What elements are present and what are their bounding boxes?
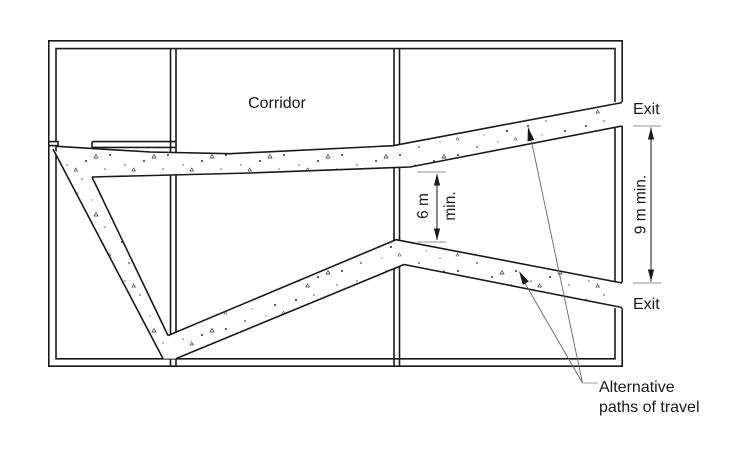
door-wall-stub — [49, 142, 58, 146]
corridor-label: Corridor — [248, 95, 306, 112]
exit-bottom-label: Exit — [633, 296, 660, 313]
dimension-6m: 6 m min. — [415, 172, 459, 242]
dimension-9m-label: 9 m min. — [633, 175, 650, 234]
arrow-down-icon — [648, 270, 654, 282]
interior-wall-2 — [394, 49, 400, 366]
arrow-up-icon — [434, 174, 440, 186]
floor-plan-stage: 6 m min. 9 m min. Corridor Exit Exit Alt… — [0, 0, 750, 462]
arrow-down-icon — [434, 229, 440, 241]
outer-wall — [49, 41, 622, 366]
dimension-6m-qualifier: min. — [442, 191, 459, 220]
annotation-line2: paths of travel — [599, 399, 700, 416]
upper-travel-path — [57, 103, 622, 177]
corridor-wall-segment — [92, 142, 176, 148]
lower-travel-path-texture — [53, 149, 622, 359]
lower-travel-path — [53, 149, 622, 359]
upper-travel-path-texture — [57, 103, 622, 177]
leader-lines — [525, 142, 583, 384]
exit-top-label: Exit — [633, 101, 660, 118]
dimension-9m: 9 m min. — [633, 126, 662, 283]
annotation-leaders — [519, 127, 598, 383]
floor-plan-diagram: 6 m min. 9 m min. Corridor Exit Exit Alt… — [0, 0, 750, 462]
annotation-line1: Alternative — [599, 379, 675, 396]
lower-path-outer-edge-descending — [53, 149, 163, 359]
arrow-up-icon — [648, 128, 654, 140]
lower-path-inner-edge-descending — [92, 177, 168, 336]
interior-wall-1 — [171, 49, 177, 366]
lower-travel-path-fill — [53, 149, 622, 359]
dimension-6m-value: 6 m — [415, 193, 432, 219]
leader-line-upper-path — [532, 142, 583, 384]
building-walls — [49, 41, 622, 366]
